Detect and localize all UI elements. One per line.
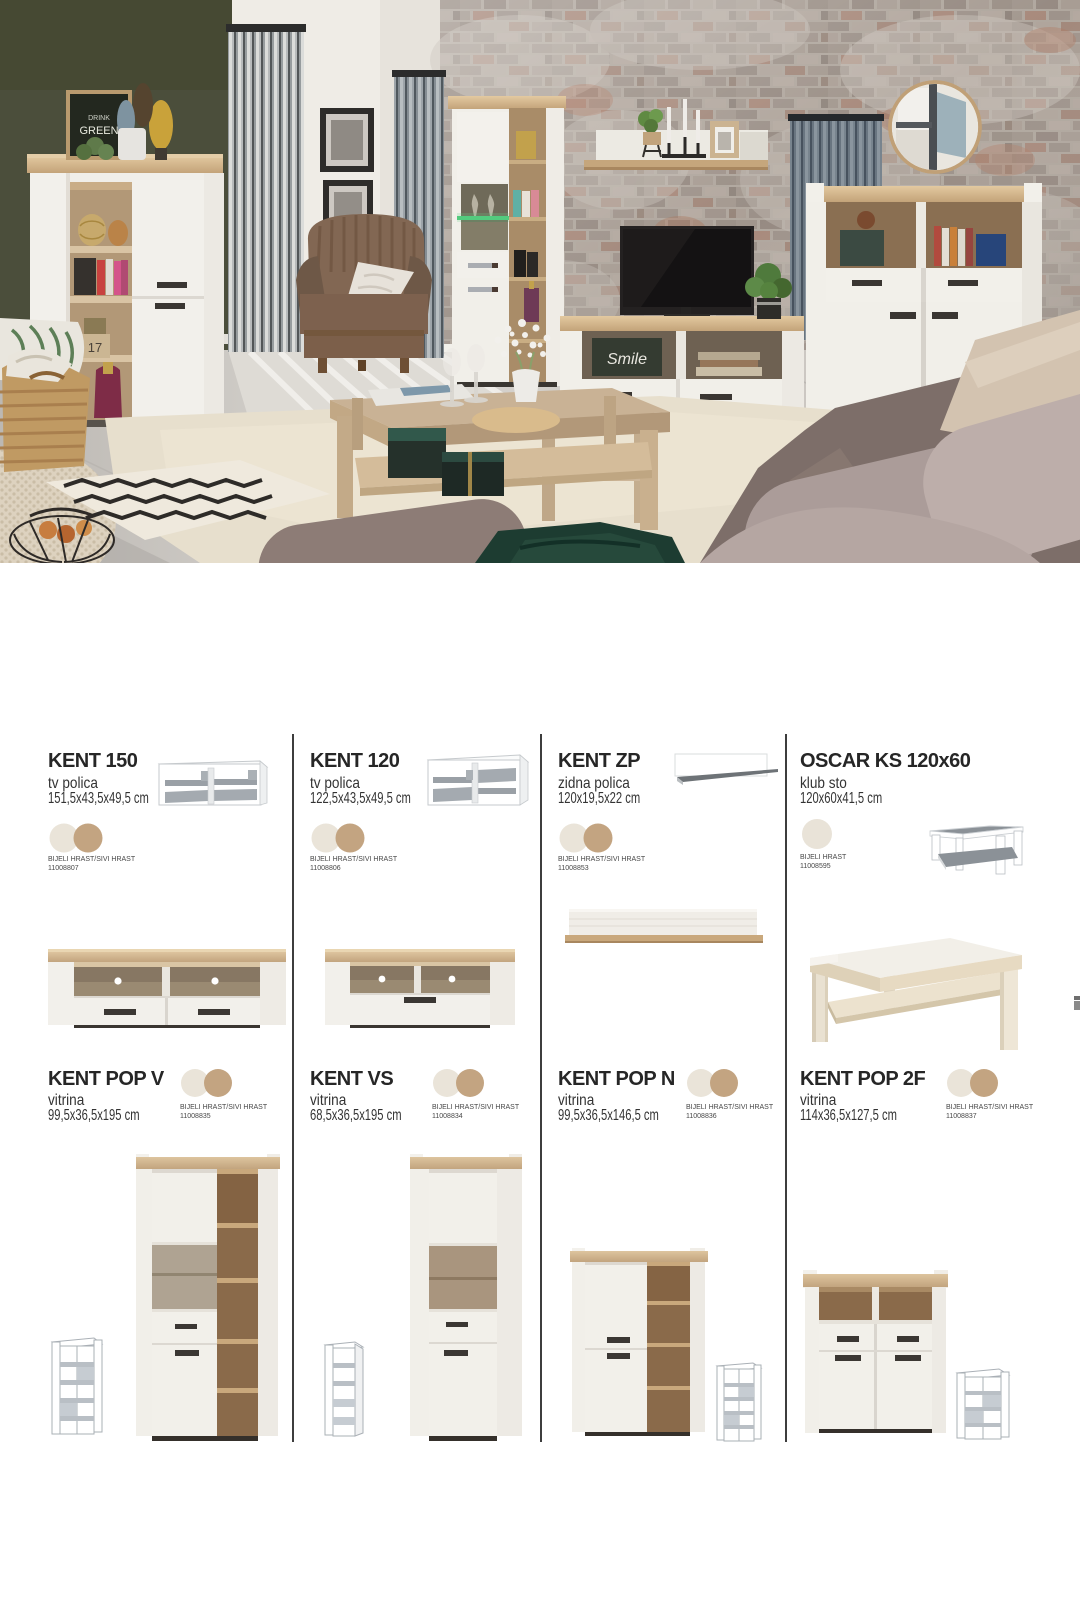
- svg-text:17: 17: [88, 340, 102, 355]
- svg-text:Smile: Smile: [607, 351, 647, 368]
- svg-text:DRINK: DRINK: [88, 115, 110, 122]
- svg-text:GREEN: GREEN: [79, 125, 118, 137]
